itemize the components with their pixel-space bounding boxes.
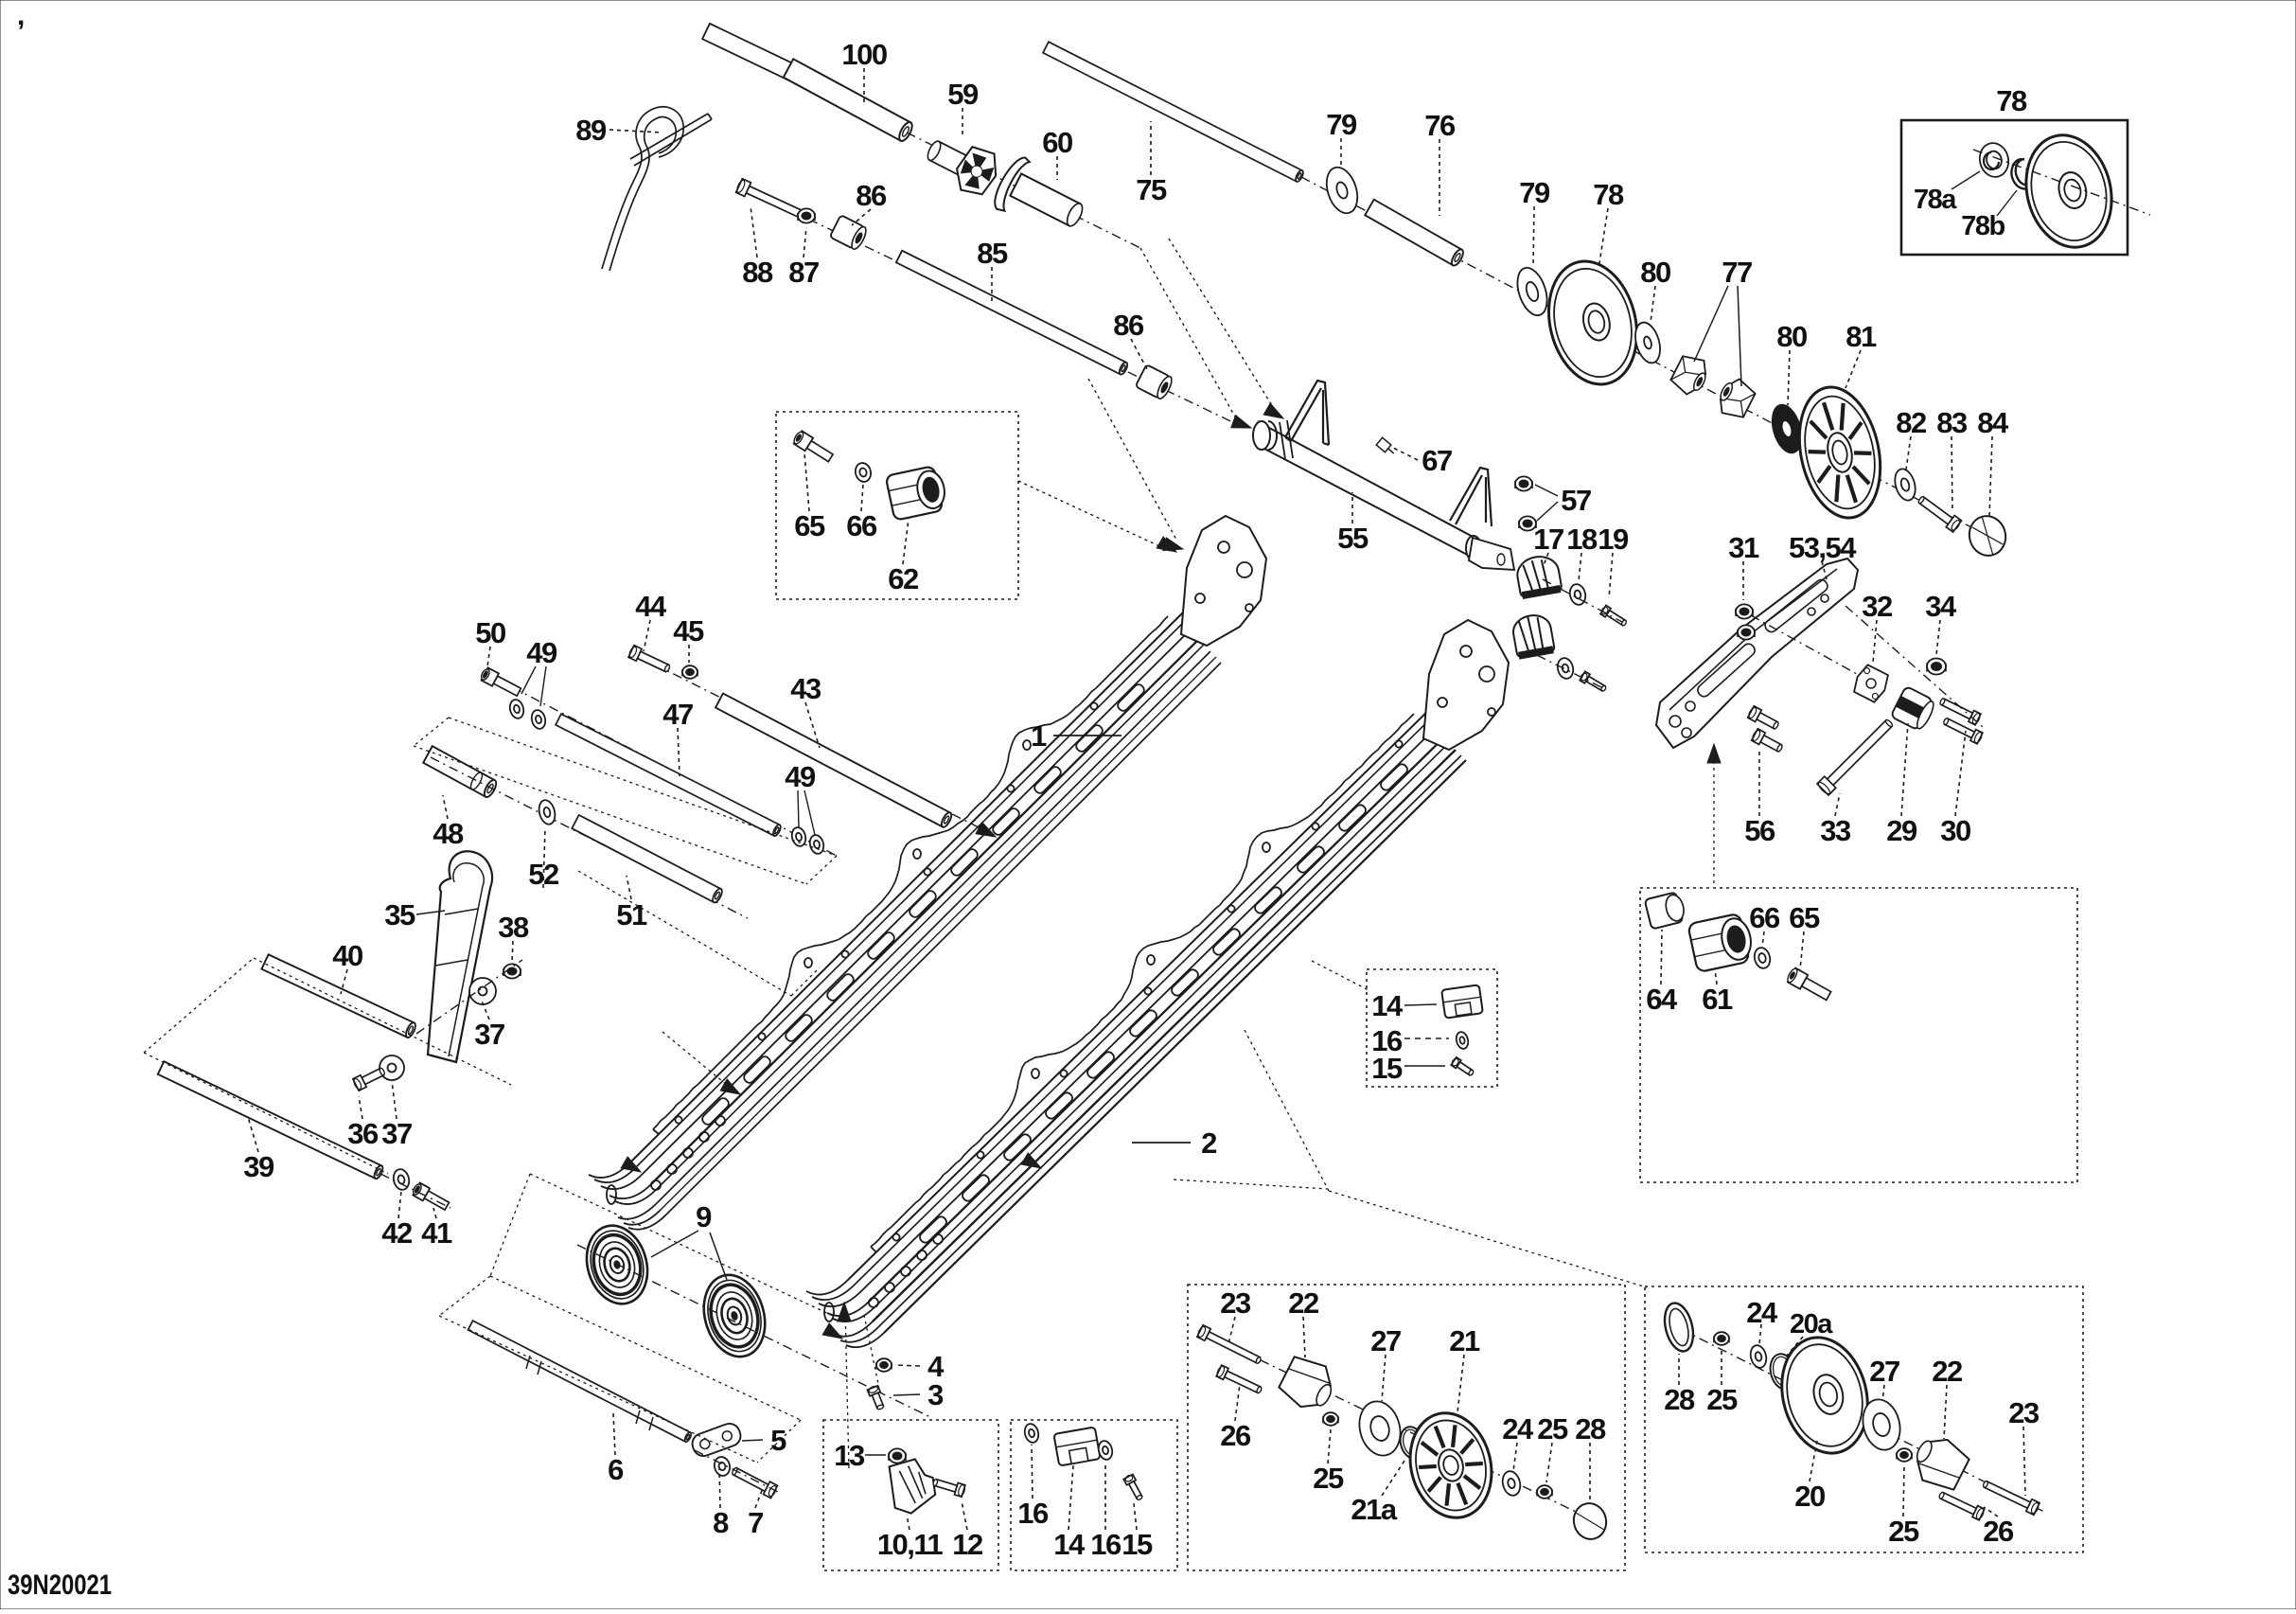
svg-text:25: 25: [1313, 1462, 1344, 1495]
svg-text:60: 60: [1042, 126, 1072, 159]
svg-text:7: 7: [748, 1506, 763, 1539]
svg-text:3: 3: [927, 1378, 944, 1411]
svg-text:40: 40: [332, 939, 362, 972]
svg-text:79: 79: [1326, 108, 1357, 141]
svg-text:26: 26: [1220, 1419, 1251, 1452]
svg-text:47: 47: [662, 698, 693, 731]
svg-text:25: 25: [1888, 1515, 1919, 1548]
svg-text:45: 45: [673, 614, 704, 647]
svg-text:42: 42: [381, 1216, 412, 1250]
svg-text:55: 55: [1337, 522, 1369, 555]
svg-text:78: 78: [1996, 84, 2027, 117]
svg-text:86: 86: [856, 179, 887, 212]
svg-text:61: 61: [1702, 983, 1733, 1016]
svg-text:80: 80: [1776, 320, 1807, 353]
svg-text:6: 6: [608, 1453, 624, 1486]
svg-text:9: 9: [696, 1200, 712, 1233]
svg-text:20a: 20a: [1790, 1309, 1833, 1339]
svg-text:29: 29: [1886, 814, 1917, 847]
svg-text:65: 65: [794, 509, 825, 542]
svg-text:17: 17: [1533, 523, 1563, 556]
svg-text:13: 13: [834, 1439, 865, 1472]
svg-text:14: 14: [1053, 1528, 1086, 1561]
svg-text:28: 28: [1664, 1383, 1695, 1416]
svg-text:88: 88: [742, 256, 773, 289]
svg-text:20: 20: [1794, 1480, 1825, 1513]
svg-text:57: 57: [1561, 484, 1591, 517]
svg-text:27: 27: [1370, 1324, 1401, 1357]
svg-text:81: 81: [1846, 320, 1877, 353]
svg-text:80: 80: [1640, 256, 1670, 289]
svg-text:16: 16: [1017, 1497, 1049, 1530]
svg-text:78: 78: [1593, 178, 1624, 211]
svg-text:26: 26: [1983, 1515, 2014, 1548]
svg-text:12: 12: [952, 1528, 982, 1561]
svg-text:83: 83: [1936, 406, 1968, 439]
svg-text:,: ,: [17, 0, 25, 31]
svg-text:22: 22: [1288, 1286, 1318, 1320]
svg-text:32: 32: [1862, 590, 1892, 623]
svg-text:67: 67: [1422, 444, 1452, 477]
svg-text:43: 43: [790, 672, 821, 705]
svg-text:25: 25: [1706, 1383, 1738, 1416]
svg-text:21a: 21a: [1351, 1493, 1397, 1526]
svg-text:78b: 78b: [1961, 211, 2005, 241]
svg-text:51: 51: [616, 898, 647, 931]
svg-text:21: 21: [1449, 1324, 1480, 1357]
svg-text:56: 56: [1744, 814, 1775, 847]
svg-text:100: 100: [841, 38, 886, 71]
svg-text:37: 37: [474, 1018, 504, 1051]
svg-text:89: 89: [575, 114, 607, 147]
svg-text:76: 76: [1424, 109, 1456, 142]
svg-text:1: 1: [1031, 719, 1047, 753]
svg-text:10,11: 10,11: [877, 1528, 944, 1561]
svg-text:34: 34: [1925, 590, 1957, 623]
svg-text:37: 37: [381, 1117, 412, 1150]
svg-text:31: 31: [1728, 531, 1759, 564]
svg-text:23: 23: [1220, 1286, 1251, 1320]
svg-text:23: 23: [2008, 1396, 2040, 1429]
svg-text:15: 15: [1122, 1528, 1153, 1561]
svg-text:25: 25: [1537, 1412, 1568, 1446]
svg-text:39N20021: 39N20021: [8, 1570, 112, 1601]
svg-text:24: 24: [1502, 1412, 1534, 1446]
svg-text:35: 35: [384, 898, 415, 931]
svg-text:19: 19: [1598, 523, 1629, 556]
svg-text:2: 2: [1201, 1126, 1216, 1160]
svg-text:49: 49: [785, 760, 816, 793]
svg-text:49: 49: [526, 636, 557, 669]
svg-text:24: 24: [1746, 1296, 1778, 1329]
svg-text:30: 30: [1940, 814, 1970, 847]
svg-text:59: 59: [947, 78, 979, 111]
svg-text:41: 41: [421, 1216, 452, 1250]
svg-text:14: 14: [1371, 989, 1404, 1022]
svg-text:44: 44: [635, 590, 667, 623]
svg-text:65: 65: [1789, 901, 1820, 934]
svg-text:66: 66: [846, 509, 877, 542]
svg-text:38: 38: [498, 911, 529, 944]
svg-text:50: 50: [475, 616, 505, 649]
svg-text:27: 27: [1869, 1355, 1899, 1388]
svg-text:77: 77: [1722, 256, 1752, 289]
svg-text:75: 75: [1136, 173, 1167, 206]
svg-text:39: 39: [243, 1150, 274, 1183]
svg-text:5: 5: [770, 1424, 786, 1457]
svg-text:48: 48: [433, 817, 464, 850]
svg-text:79: 79: [1519, 176, 1550, 209]
svg-text:78a: 78a: [1914, 185, 1957, 215]
svg-text:82: 82: [1896, 406, 1926, 439]
svg-text:87: 87: [788, 256, 819, 289]
svg-text:36: 36: [347, 1117, 379, 1150]
svg-text:62: 62: [888, 562, 918, 595]
svg-text:22: 22: [1932, 1355, 1962, 1388]
svg-text:28: 28: [1575, 1412, 1606, 1446]
svg-text:18: 18: [1566, 523, 1598, 556]
svg-text:66: 66: [1749, 901, 1780, 934]
svg-text:53,54: 53,54: [1789, 531, 1857, 564]
svg-text:16: 16: [1090, 1528, 1122, 1561]
svg-text:33: 33: [1820, 814, 1851, 847]
svg-text:8: 8: [713, 1506, 729, 1539]
svg-text:86: 86: [1113, 309, 1144, 342]
svg-text:15: 15: [1371, 1052, 1403, 1085]
svg-text:84: 84: [1977, 406, 2009, 439]
svg-text:85: 85: [977, 237, 1008, 270]
svg-text:64: 64: [1646, 983, 1678, 1016]
